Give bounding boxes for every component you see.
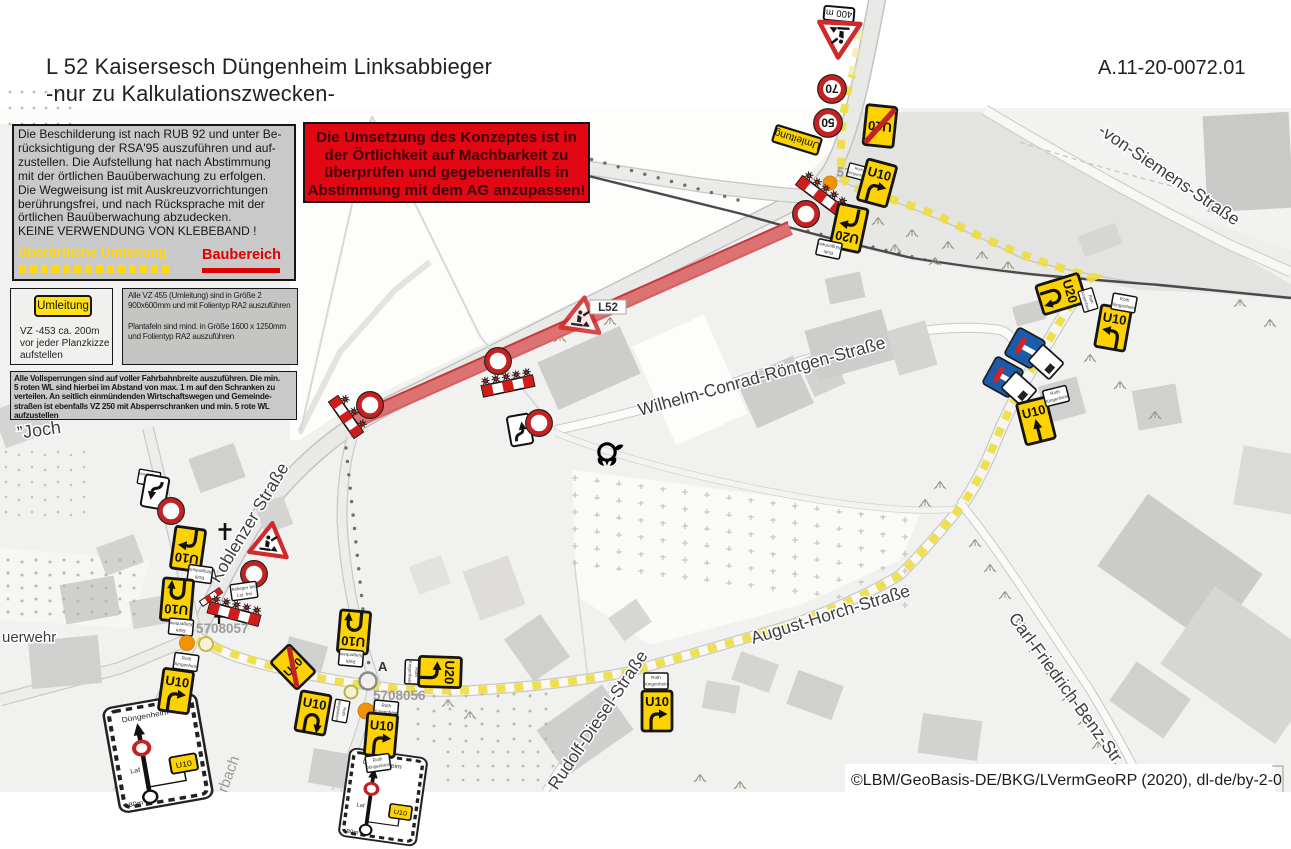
svg-text:5708057: 5708057 xyxy=(196,621,249,636)
svg-text:U10: U10 xyxy=(645,694,669,709)
svg-text:U10: U10 xyxy=(369,717,394,734)
svg-text:L52: L52 xyxy=(598,302,618,314)
svg-text:A: A xyxy=(378,659,388,674)
svg-text:U10: U10 xyxy=(164,601,189,618)
svg-text:uerwehr: uerwehr xyxy=(2,629,56,646)
svg-text:50: 50 xyxy=(821,116,835,130)
svg-text:U20: U20 xyxy=(442,660,458,684)
svg-text:©LBM/GeoBasis-DE/BKG/LVermGeoR: ©LBM/GeoBasis-DE/BKG/LVermGeoRP (2020), … xyxy=(851,772,1282,789)
svg-text:400 m: 400 m xyxy=(825,6,852,19)
svg-text:U10: U10 xyxy=(341,633,366,650)
svg-text:70: 70 xyxy=(825,82,839,96)
